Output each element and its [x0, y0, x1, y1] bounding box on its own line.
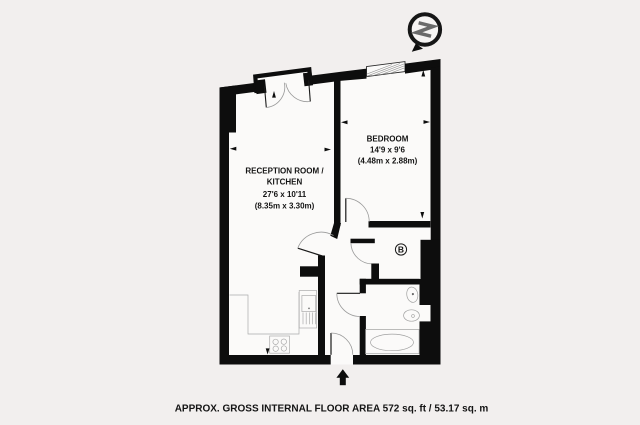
svg-text:14'9 x 9'6: 14'9 x 9'6 — [370, 146, 405, 155]
svg-text:BEDROOM: BEDROOM — [367, 135, 409, 144]
svg-text:27'6 x 10'11: 27'6 x 10'11 — [263, 190, 307, 199]
svg-text:KITCHEN: KITCHEN — [267, 178, 303, 187]
svg-text:B: B — [398, 245, 404, 255]
svg-text:RECEPTION ROOM /: RECEPTION ROOM / — [245, 167, 324, 176]
svg-text:APPROX. GROSS INTERNAL FLOOR A: APPROX. GROSS INTERNAL FLOOR AREA 572 sq… — [175, 404, 489, 415]
svg-text:(8.35m x 3.30m): (8.35m x 3.30m) — [255, 202, 315, 211]
svg-text:(4.48m x 2.88m): (4.48m x 2.88m) — [358, 157, 418, 166]
